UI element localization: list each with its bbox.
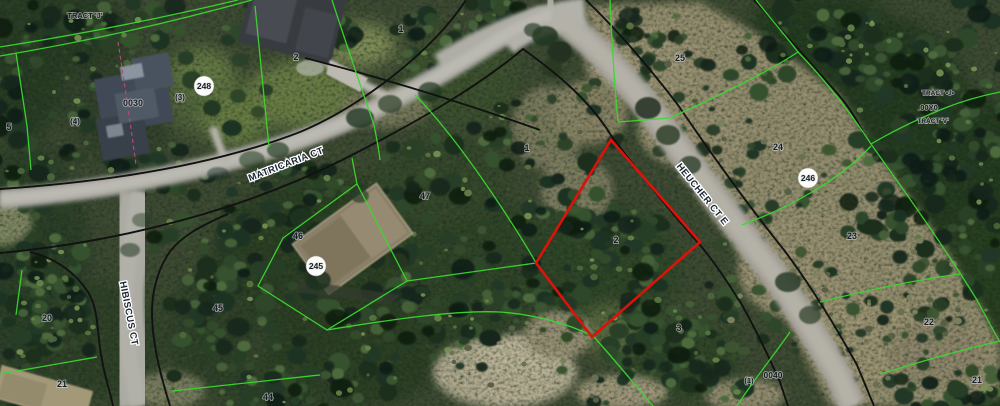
svg-text:(1): (1)	[744, 376, 754, 385]
svg-text:2: 2	[613, 235, 618, 245]
svg-text:46: 46	[293, 231, 303, 241]
svg-text:(3): (3)	[175, 93, 185, 102]
svg-text:0030: 0030	[123, 98, 143, 108]
svg-text:248: 248	[197, 81, 211, 91]
svg-text:00Y0: 00Y0	[920, 103, 938, 112]
svg-text:22: 22	[924, 317, 934, 327]
svg-text:44: 44	[263, 392, 273, 402]
svg-text:TRACT •J•: TRACT •J•	[922, 90, 955, 97]
svg-text:TRACT 'V': TRACT 'V'	[917, 118, 949, 125]
svg-text:20: 20	[42, 313, 52, 323]
svg-text:25: 25	[675, 53, 685, 63]
svg-text:0040: 0040	[764, 370, 783, 380]
svg-text:2: 2	[293, 52, 298, 62]
svg-text:245: 245	[309, 261, 323, 271]
svg-text:23: 23	[847, 231, 857, 241]
svg-text:1: 1	[398, 24, 403, 34]
svg-text:1: 1	[524, 143, 529, 153]
svg-text:47: 47	[420, 191, 430, 201]
svg-text:21: 21	[972, 375, 982, 385]
svg-text:3: 3	[676, 323, 681, 333]
svg-text:24: 24	[773, 142, 783, 152]
svg-text:45: 45	[213, 303, 223, 313]
svg-text:246: 246	[801, 173, 815, 183]
svg-text:21: 21	[57, 379, 67, 389]
svg-text:5: 5	[6, 122, 11, 132]
svg-text:(4): (4)	[70, 117, 80, 126]
svg-text:TRACT 'J': TRACT 'J'	[67, 11, 102, 20]
